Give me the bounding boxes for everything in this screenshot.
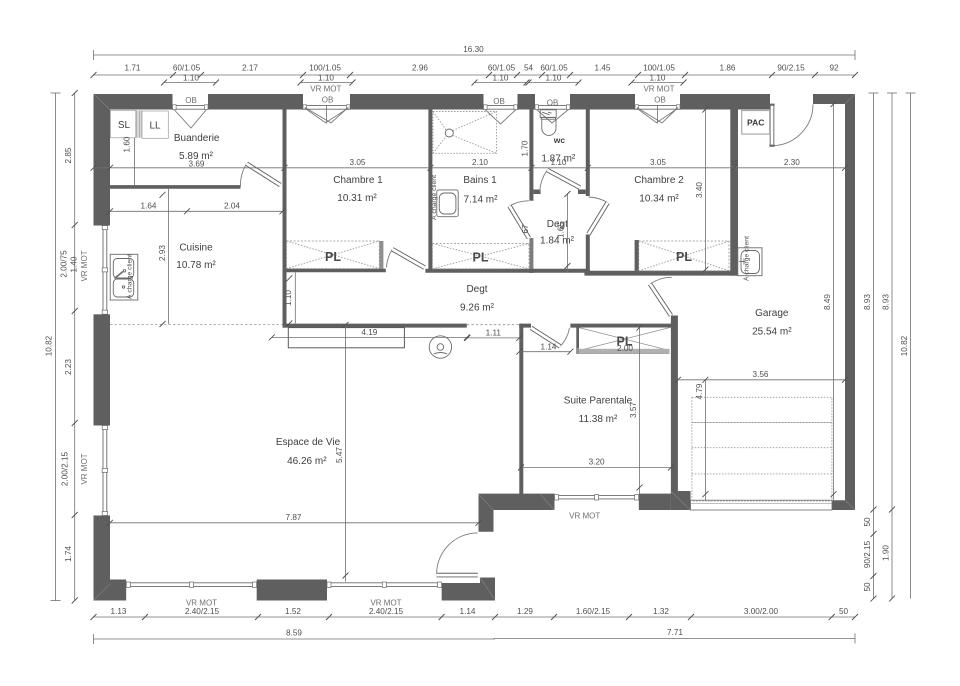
svg-text:15: 15 <box>731 160 739 167</box>
svg-text:VR MOT: VR MOT <box>80 250 89 281</box>
svg-text:PL: PL <box>676 250 692 264</box>
svg-text:Degt: Degt <box>466 284 487 295</box>
svg-text:2.00/75: 2.00/75 <box>60 250 69 278</box>
svg-text:Espace de Vie: Espace de Vie <box>276 437 341 448</box>
svg-text:2.85: 2.85 <box>64 147 73 163</box>
svg-text:1.60/2.15: 1.60/2.15 <box>576 607 611 616</box>
svg-text:10.78 m²: 10.78 m² <box>176 260 216 271</box>
svg-text:2.96: 2.96 <box>412 64 428 73</box>
svg-text:VR MOT: VR MOT <box>80 453 89 484</box>
svg-text:7.71: 7.71 <box>667 628 683 637</box>
svg-text:3.00/2.00: 3.00/2.00 <box>744 607 779 616</box>
svg-text:1.40: 1.40 <box>70 256 79 272</box>
svg-text:2.04: 2.04 <box>224 202 240 211</box>
svg-text:90/2.15: 90/2.15 <box>863 540 872 568</box>
svg-text:50: 50 <box>863 517 872 527</box>
svg-text:1.10: 1.10 <box>546 74 562 83</box>
svg-text:3.20: 3.20 <box>589 458 605 467</box>
svg-text:10.82: 10.82 <box>45 335 54 356</box>
svg-text:92: 92 <box>829 64 839 73</box>
svg-text:25.54 m²: 25.54 m² <box>752 327 792 338</box>
svg-text:100/1.05: 100/1.05 <box>643 64 675 73</box>
svg-text:1.10: 1.10 <box>493 74 509 83</box>
svg-text:1.11: 1.11 <box>486 328 502 337</box>
svg-text:3.05: 3.05 <box>650 158 666 167</box>
svg-text:4.19: 4.19 <box>361 328 377 337</box>
svg-text:2.17: 2.17 <box>242 64 258 73</box>
svg-text:OB: OB <box>654 96 666 105</box>
svg-text:1.29: 1.29 <box>517 607 533 616</box>
svg-text:3.40: 3.40 <box>695 182 704 198</box>
svg-text:1.74: 1.74 <box>64 546 73 562</box>
svg-text:8.59: 8.59 <box>286 629 302 638</box>
svg-text:1.10: 1.10 <box>551 158 567 167</box>
svg-text:54: 54 <box>524 64 534 73</box>
svg-text:VR MOT: VR MOT <box>310 85 341 94</box>
svg-text:5.47: 5.47 <box>335 447 344 463</box>
svg-text:2.00: 2.00 <box>617 344 633 353</box>
svg-text:2.30: 2.30 <box>784 158 800 167</box>
svg-text:7.14 m²: 7.14 m² <box>464 195 499 206</box>
svg-text:1.10: 1.10 <box>284 290 293 306</box>
svg-text:2.40/2.15: 2.40/2.15 <box>185 607 220 616</box>
svg-text:VR MOT: VR MOT <box>569 512 600 521</box>
svg-text:PL: PL <box>325 250 341 264</box>
svg-text:16.30: 16.30 <box>463 45 484 54</box>
svg-text:SL: SL <box>118 120 131 131</box>
svg-text:90/2.15: 90/2.15 <box>777 64 805 73</box>
svg-text:4.79: 4.79 <box>695 383 704 399</box>
svg-text:2.10: 2.10 <box>472 158 488 167</box>
svg-text:3.57: 3.57 <box>629 402 638 418</box>
svg-text:OB: OB <box>322 96 334 105</box>
svg-text:1.14: 1.14 <box>460 607 476 616</box>
svg-text:Bains 1: Bains 1 <box>463 175 497 186</box>
svg-text:1.70: 1.70 <box>521 140 530 156</box>
svg-text:OB: OB <box>185 96 197 105</box>
svg-text:OB: OB <box>547 99 559 108</box>
svg-text:3.05: 3.05 <box>350 158 366 167</box>
svg-text:60/1.05: 60/1.05 <box>488 64 516 73</box>
svg-text:À charge client: À charge client <box>125 254 134 299</box>
svg-text:3.69: 3.69 <box>189 159 205 168</box>
svg-text:10.82: 10.82 <box>900 335 909 356</box>
svg-text:60/1.05: 60/1.05 <box>540 64 568 73</box>
svg-text:46.26 m²: 46.26 m² <box>287 456 327 467</box>
svg-text:10.34 m²: 10.34 m² <box>639 194 679 205</box>
svg-text:7.87: 7.87 <box>286 513 302 522</box>
svg-text:1.65: 1.65 <box>557 222 566 238</box>
svg-text:À charge client: À charge client <box>429 175 438 220</box>
svg-text:Suite Parentale: Suite Parentale <box>564 396 633 407</box>
svg-text:VR MOT: VR MOT <box>370 599 401 608</box>
svg-text:1.64: 1.64 <box>141 202 157 211</box>
svg-text:Chambre 2: Chambre 2 <box>634 175 684 186</box>
svg-text:2.40/2.15: 2.40/2.15 <box>369 607 404 616</box>
svg-text:1.60: 1.60 <box>123 136 132 152</box>
svg-text:Buanderie: Buanderie <box>174 133 220 144</box>
svg-text:100/1.05: 100/1.05 <box>309 64 341 73</box>
svg-text:11.38 m²: 11.38 m² <box>579 414 618 425</box>
svg-text:67: 67 <box>521 224 530 234</box>
svg-text:2.00/2.15: 2.00/2.15 <box>61 451 70 486</box>
svg-text:10.31 m²: 10.31 m² <box>337 193 377 204</box>
svg-text:VR MOT: VR MOT <box>643 85 674 94</box>
svg-text:1.32: 1.32 <box>653 607 669 616</box>
svg-text:1.14: 1.14 <box>541 343 557 352</box>
svg-text:Cuisine: Cuisine <box>179 243 213 254</box>
svg-text:1.10: 1.10 <box>183 74 199 83</box>
svg-text:3.56: 3.56 <box>753 370 769 379</box>
svg-text:8.93: 8.93 <box>881 294 890 310</box>
svg-text:1.13: 1.13 <box>111 607 127 616</box>
svg-text:wc: wc <box>553 135 566 145</box>
svg-text:Garage: Garage <box>755 308 789 319</box>
svg-text:1.10: 1.10 <box>650 74 666 83</box>
svg-text:1.52: 1.52 <box>285 607 301 616</box>
svg-text:1.45: 1.45 <box>595 64 611 73</box>
svg-text:VR MOT: VR MOT <box>186 599 217 608</box>
svg-text:9.26 m²: 9.26 m² <box>460 303 495 314</box>
svg-text:À charge client: À charge client <box>742 236 751 281</box>
svg-text:60/1.05: 60/1.05 <box>173 64 201 73</box>
svg-text:50: 50 <box>863 582 872 592</box>
svg-text:50: 50 <box>839 607 849 616</box>
svg-text:PL: PL <box>473 251 489 265</box>
svg-text:8.93: 8.93 <box>863 294 872 310</box>
svg-text:8.49: 8.49 <box>823 294 832 310</box>
svg-text:PAC: PAC <box>747 117 764 127</box>
svg-text:1.10: 1.10 <box>318 74 334 83</box>
svg-text:2.93: 2.93 <box>158 245 167 261</box>
svg-text:Chambre 1: Chambre 1 <box>333 175 383 186</box>
svg-text:1.71: 1.71 <box>125 64 141 73</box>
svg-text:1.86: 1.86 <box>720 64 736 73</box>
svg-text:OB: OB <box>493 97 505 106</box>
svg-text:2.23: 2.23 <box>64 359 73 375</box>
svg-text:1.90: 1.90 <box>881 545 890 561</box>
svg-text:LL: LL <box>149 121 161 132</box>
